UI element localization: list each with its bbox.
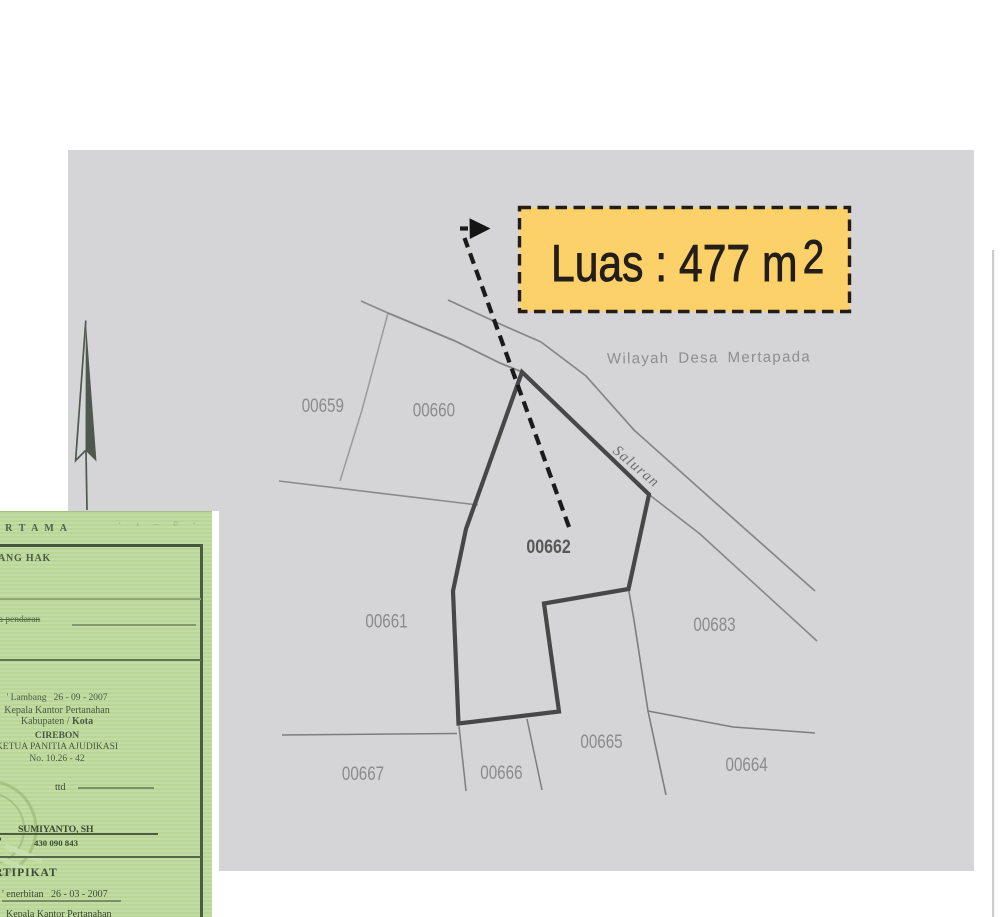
svg-text:00662: 00662	[526, 536, 571, 558]
svg-text:00660: 00660	[413, 399, 455, 421]
svg-text:Wilayah Desa Mertapada: Wilayah Desa Mertapada	[607, 348, 811, 367]
svg-text:00661: 00661	[365, 610, 407, 632]
svg-text:2: 2	[803, 231, 824, 283]
svg-text:00683: 00683	[693, 613, 735, 635]
svg-text:00664: 00664	[725, 753, 768, 775]
svg-text:Luas : 477 m: Luas : 477 m	[551, 235, 798, 293]
svg-text:00659: 00659	[302, 394, 344, 416]
svg-text:00666: 00666	[480, 761, 522, 783]
svg-text:00667: 00667	[342, 762, 384, 784]
svg-text:00665: 00665	[580, 730, 622, 752]
